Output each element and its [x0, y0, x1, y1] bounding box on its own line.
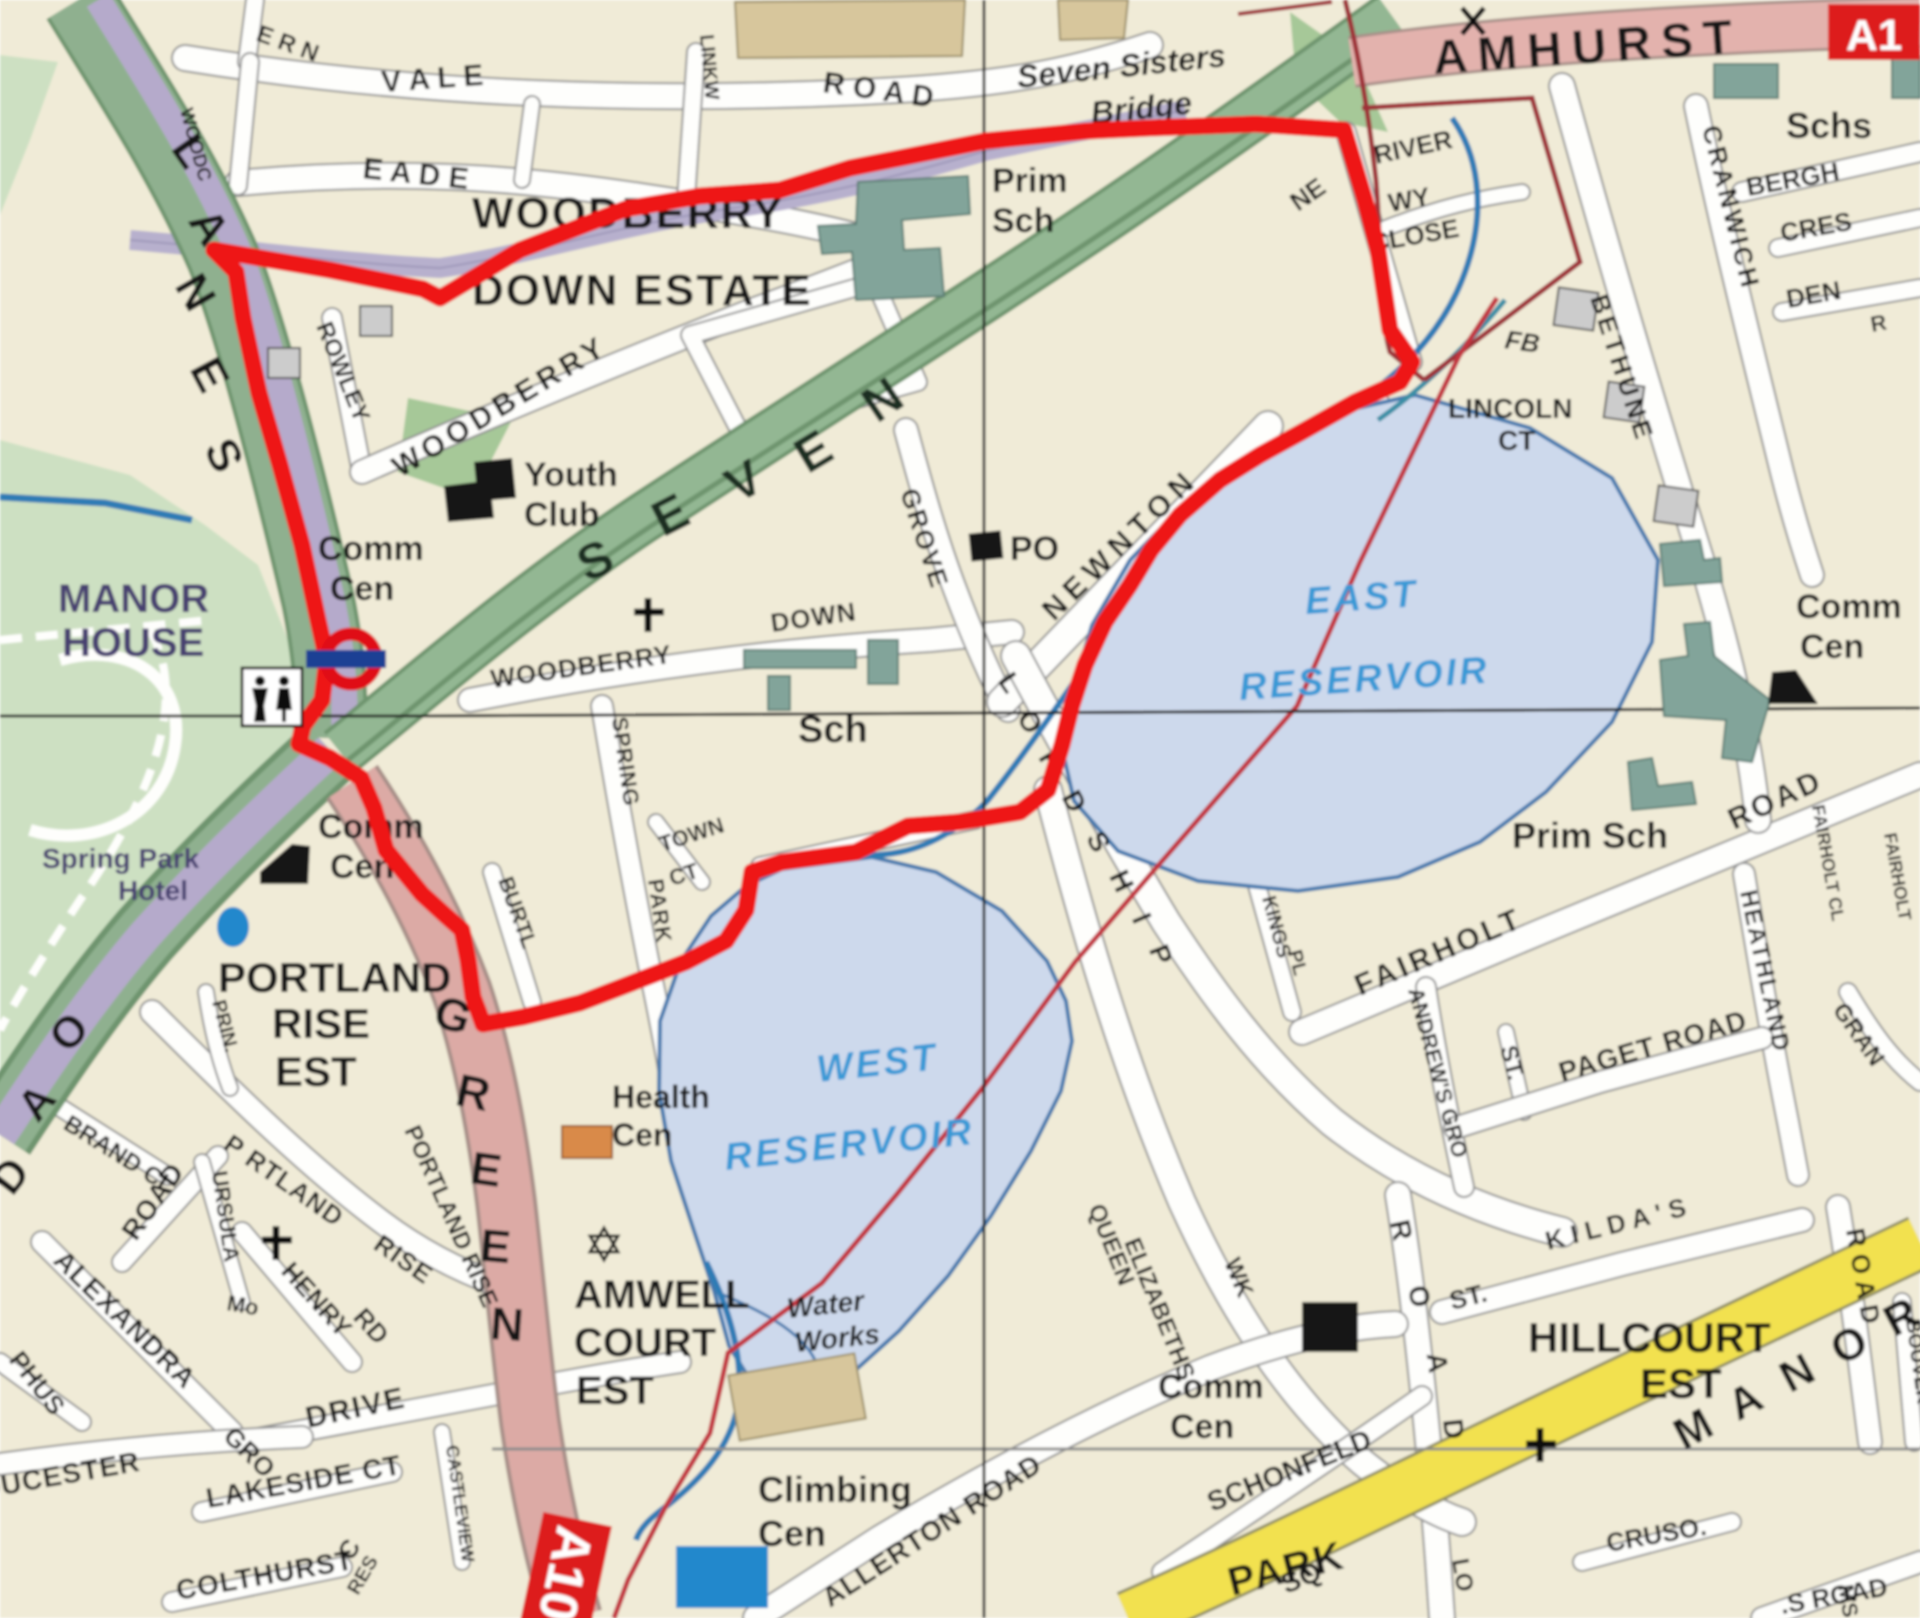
svg-text:LO: LO: [1446, 1556, 1478, 1594]
svg-text:MANOR: MANOR: [58, 577, 209, 621]
svg-text:Prim: Prim: [992, 162, 1068, 200]
svg-text:Cen: Cen: [612, 1117, 672, 1153]
svg-text:COURT: COURT: [574, 1321, 716, 1365]
svg-text:Cen: Cen: [1800, 628, 1864, 666]
svg-text:PO: PO: [1010, 530, 1059, 568]
svg-text:AMWELL: AMWELL: [574, 1273, 750, 1317]
svg-text:D: D: [1437, 1417, 1470, 1440]
svg-text:DOWN ESTATE: DOWN ESTATE: [472, 266, 813, 315]
svg-text:A: A: [1421, 1351, 1455, 1375]
svg-text:Sch: Sch: [992, 202, 1054, 240]
svg-text:A1: A1: [1846, 11, 1902, 60]
svg-text:PORTLAND: PORTLAND: [218, 954, 451, 1001]
svg-text:Sch: Sch: [798, 709, 868, 751]
svg-text:EST: EST: [1640, 1360, 1722, 1407]
svg-text:Hotel: Hotel: [118, 875, 188, 906]
svg-text:Comm: Comm: [1796, 588, 1902, 626]
svg-text:HOUSE: HOUSE: [62, 621, 204, 665]
svg-text:Spring Park: Spring Park: [42, 843, 200, 874]
svg-text:Cen: Cen: [1170, 1408, 1234, 1446]
svg-text:RISE: RISE: [272, 1000, 370, 1047]
svg-text:EAST: EAST: [1304, 573, 1420, 623]
svg-text:FB: FB: [1503, 324, 1542, 359]
svg-text:EST: EST: [275, 1048, 357, 1095]
svg-text:Youth: Youth: [524, 456, 618, 494]
svg-text:LINCOLN: LINCOLN: [1448, 393, 1572, 424]
svg-text:Schs: Schs: [1786, 105, 1872, 146]
svg-text:Health: Health: [612, 1079, 710, 1115]
svg-text:HILLCOURT: HILLCOURT: [1528, 1314, 1771, 1361]
svg-text:Climbing: Climbing: [758, 1469, 912, 1510]
svg-text:Comm: Comm: [318, 530, 424, 568]
svg-text:CT: CT: [1498, 425, 1535, 456]
svg-text:Cen: Cen: [330, 570, 394, 608]
svg-text:Prim Sch: Prim Sch: [1512, 815, 1668, 856]
svg-text:Cen: Cen: [758, 1513, 826, 1554]
svg-text:Club: Club: [524, 496, 600, 534]
svg-text:N: N: [489, 1297, 526, 1351]
svg-text:EST: EST: [576, 1369, 654, 1413]
